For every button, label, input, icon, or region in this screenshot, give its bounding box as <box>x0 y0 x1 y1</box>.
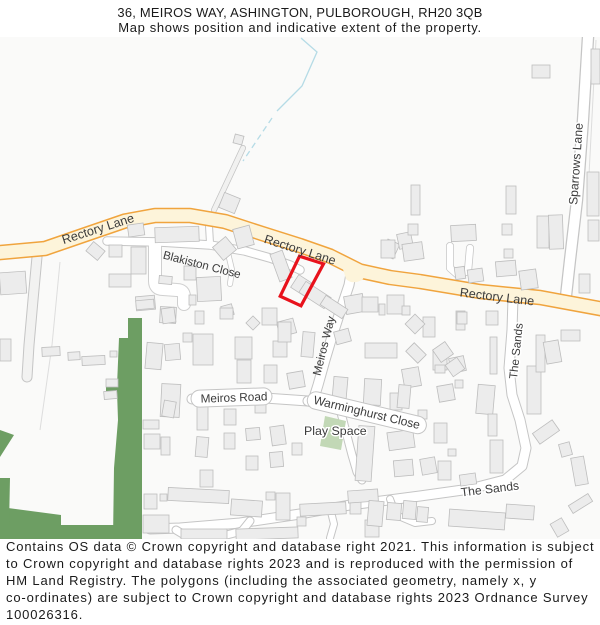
svg-text:Meiros Road: Meiros Road <box>200 389 267 405</box>
svg-text:Play Space: Play Space <box>304 424 367 438</box>
